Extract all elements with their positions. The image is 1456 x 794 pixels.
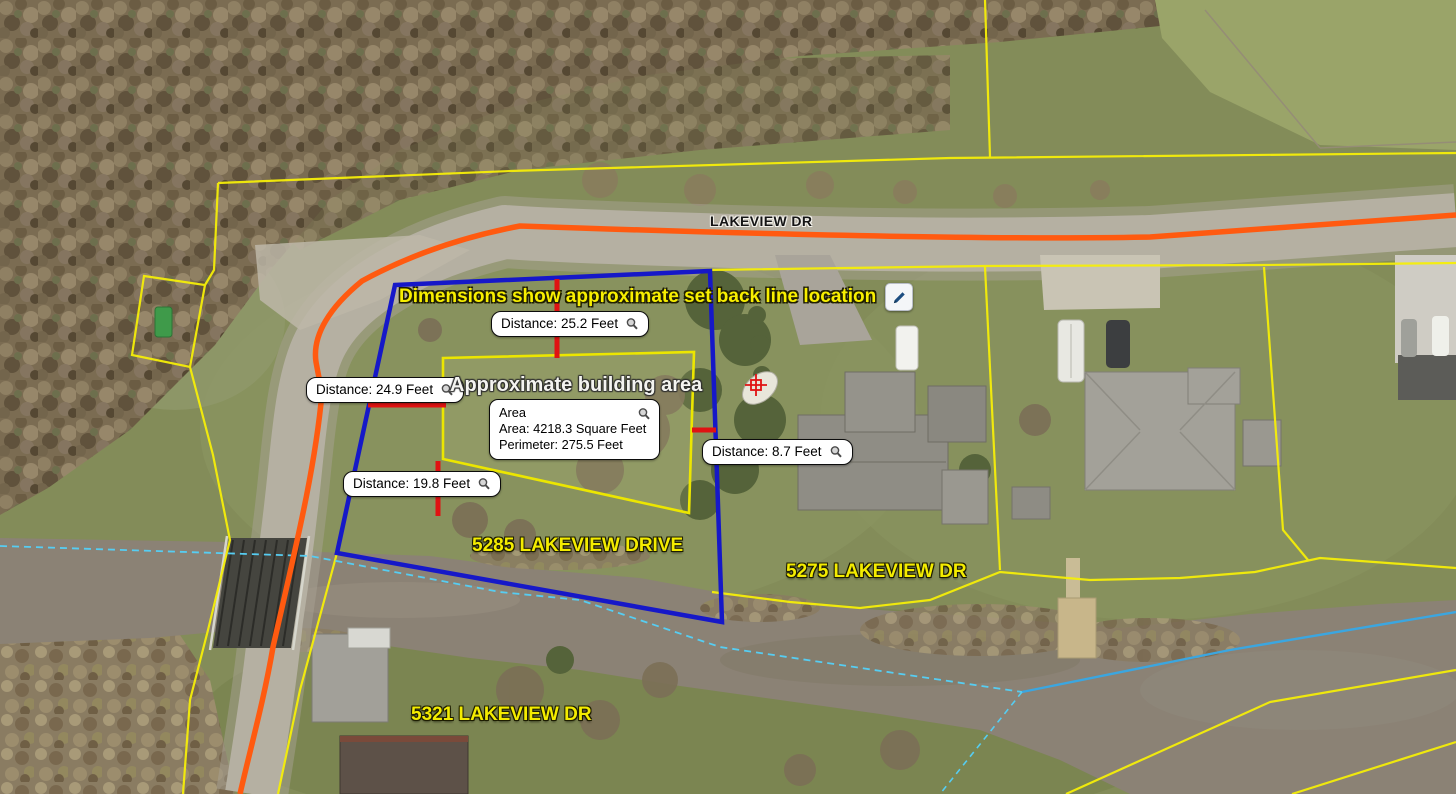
pencil-glyph <box>892 290 907 305</box>
road-name-label: LAKEVIEW DR <box>710 213 812 229</box>
building-area-title: Approximate building area <box>450 374 702 397</box>
setback-banner: Dimensions show approximate set back lin… <box>399 283 913 311</box>
distance-tooltip-1: Distance: 25.2 Feet <box>491 311 649 337</box>
magnifier-icon[interactable] <box>625 317 639 331</box>
area-tooltip-area: Area: 4218.3 Square Feet <box>499 421 649 437</box>
area-tooltip-perimeter: Perimeter: 275.5 Feet <box>499 437 649 453</box>
distance-tooltip-1-text: Distance: 25.2 Feet <box>501 316 618 331</box>
parcel-label-5285: 5285 LAKEVIEW DRIVE <box>472 535 683 557</box>
map-canvas[interactable] <box>0 0 1456 794</box>
gis-map-view: LAKEVIEW DR Dimensions show approximate … <box>0 0 1456 794</box>
distance-tooltip-4-text: Distance: 8.7 Feet <box>712 444 822 459</box>
magnifier-icon[interactable] <box>829 445 843 459</box>
area-tooltip: Area Area: 4218.3 Square Feet Perimeter:… <box>489 399 660 460</box>
distance-tooltip-2-text: Distance: 24.9 Feet <box>316 382 433 397</box>
magnifier-icon[interactable] <box>637 407 651 421</box>
pencil-icon[interactable] <box>885 283 913 311</box>
distance-tooltip-3-text: Distance: 19.8 Feet <box>353 476 470 491</box>
magnifier-icon[interactable] <box>477 477 491 491</box>
parcel-label-5275: 5275 LAKEVIEW DR <box>786 561 967 583</box>
distance-tooltip-2: Distance: 24.9 Feet <box>306 377 464 403</box>
distance-tooltip-4: Distance: 8.7 Feet <box>702 439 853 465</box>
area-tooltip-title: Area <box>499 405 649 421</box>
setback-banner-text: Dimensions show approximate set back lin… <box>399 286 876 308</box>
distance-tooltip-3: Distance: 19.8 Feet <box>343 471 501 497</box>
parcel-label-5321: 5321 LAKEVIEW DR <box>411 704 592 726</box>
